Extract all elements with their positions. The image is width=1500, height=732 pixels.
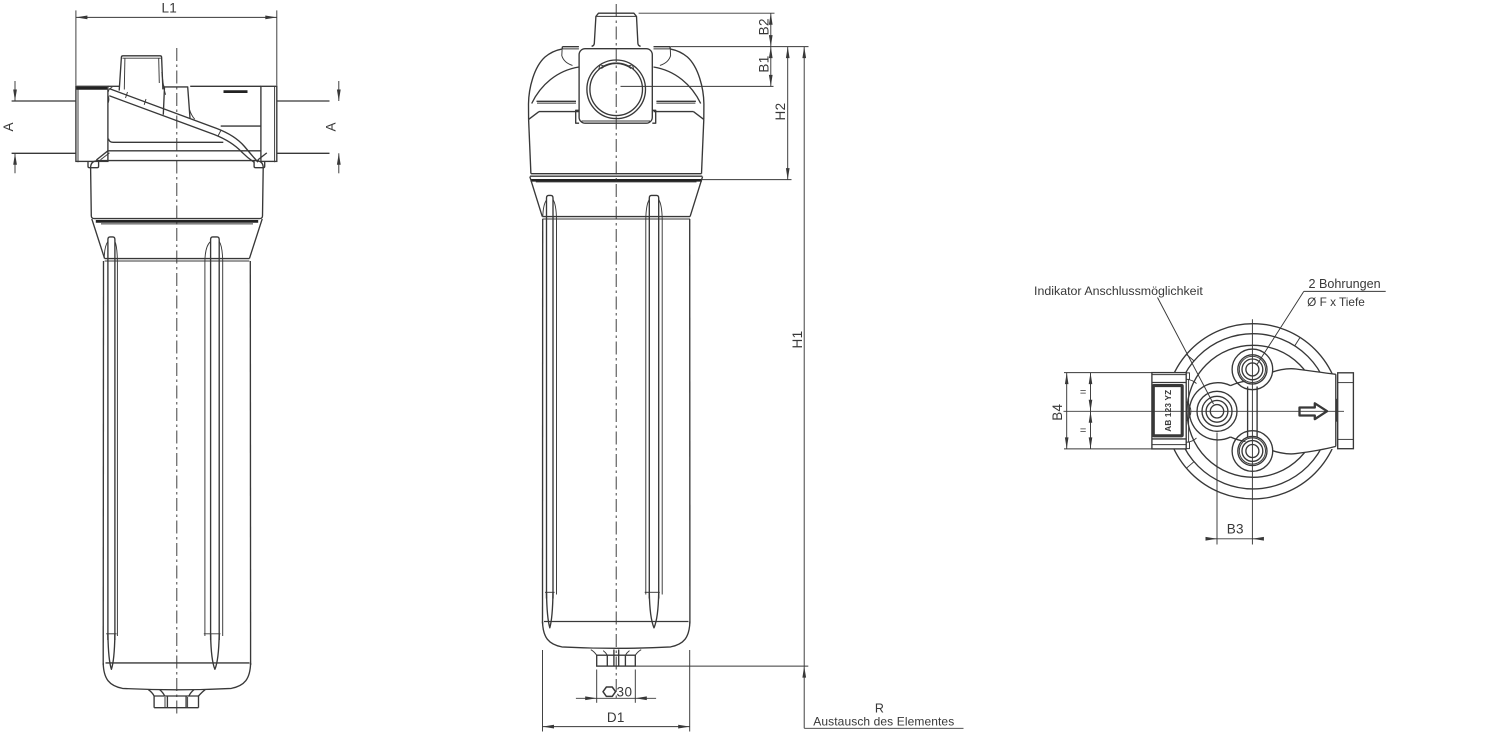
- svg-text:30: 30: [617, 684, 633, 699]
- svg-text:=: =: [1080, 425, 1087, 437]
- svg-text:Ø F x Tiefe: Ø F x Tiefe: [1307, 295, 1365, 309]
- svg-text:Indikator Anschlussmöglichkeit: Indikator Anschlussmöglichkeit: [1034, 284, 1203, 298]
- svg-text:AB 123 YZ: AB 123 YZ: [1164, 390, 1173, 432]
- svg-text:A: A: [1, 122, 16, 131]
- svg-text:H2: H2: [773, 103, 788, 121]
- svg-text:R: R: [875, 702, 884, 716]
- svg-text:D1: D1: [607, 710, 625, 725]
- svg-text:B4: B4: [1050, 403, 1065, 420]
- svg-text:B1: B1: [756, 55, 771, 72]
- svg-text:B2: B2: [756, 18, 771, 35]
- svg-text:Austausch des Elementes: Austausch des Elementes: [813, 714, 954, 728]
- svg-text:=: =: [1080, 387, 1087, 399]
- svg-text:L1: L1: [161, 0, 177, 15]
- svg-text:A: A: [323, 122, 338, 131]
- svg-text:H1: H1: [790, 331, 805, 349]
- svg-text:B3: B3: [1227, 522, 1244, 537]
- svg-text:2 Bohrungen: 2 Bohrungen: [1309, 277, 1381, 291]
